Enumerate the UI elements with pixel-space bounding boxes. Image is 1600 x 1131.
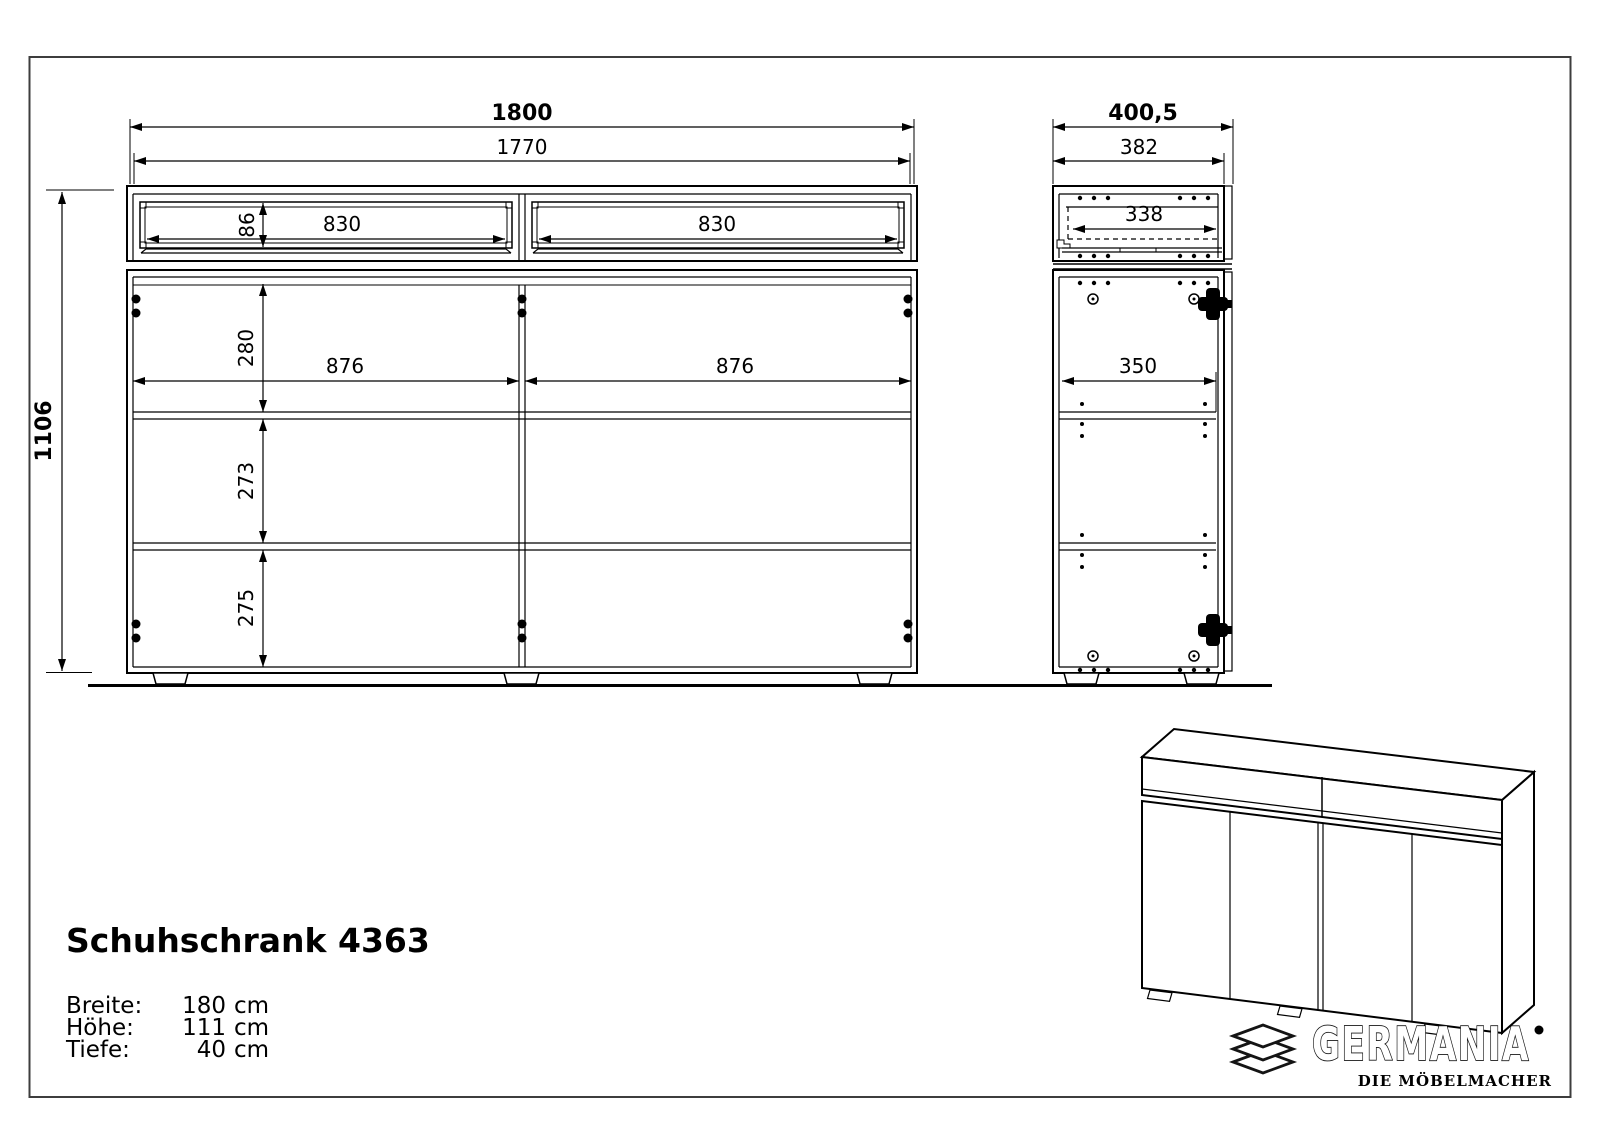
dim-width-inner: 1770 <box>497 135 548 159</box>
side-feet <box>1064 673 1219 684</box>
dim-depth-total: 400,5 <box>1108 101 1178 126</box>
side-view <box>1053 186 1232 684</box>
dim-depth-body: 382 <box>1120 135 1158 159</box>
dim-height-total: 1106 <box>32 400 57 461</box>
dim-bottom-compartment-height: 275 <box>234 589 258 627</box>
product-title: Schuhschrank 4363 <box>66 921 430 960</box>
germania-logo: GERMANIA DIE MÖBELMACHER <box>1233 1017 1552 1090</box>
layers-icon <box>1233 1025 1293 1073</box>
dim-width-total: 1800 <box>491 101 552 126</box>
product-specs: Schuhschrank 4363 Breite: 180 cm Höhe: 1… <box>65 921 430 1063</box>
registered-mark-dot <box>1535 1026 1544 1035</box>
brand-tagline: DIE MÖBELMACHER <box>1358 1071 1552 1090</box>
technical-drawing: 1800 1770 86 830 830 280 273 275 876 876… <box>0 0 1600 1131</box>
dim-top-compartment-height: 280 <box>234 329 258 367</box>
dim-drawer-width-left: 830 <box>323 212 361 236</box>
dim-drawer-depth: 338 <box>1125 202 1163 226</box>
dim-door-width-right: 876 <box>716 354 754 378</box>
dim-drawer-front-height: 86 <box>235 212 259 237</box>
dim-drawer-width-right: 830 <box>698 212 736 236</box>
front-feet <box>153 673 892 684</box>
spec-label-tiefe: Tiefe: <box>65 1037 130 1063</box>
dim-shelf-depth: 350 <box>1119 354 1157 378</box>
spec-unit-tiefe: cm <box>234 1037 269 1063</box>
spec-value-tiefe: 40 <box>197 1037 226 1063</box>
perspective-body-face <box>1142 801 1502 1033</box>
brand-name: GERMANIA <box>1312 1017 1530 1071</box>
dim-door-width-left: 876 <box>326 354 364 378</box>
dim-middle-compartment-height: 273 <box>234 462 258 500</box>
drawing-sheet: 1800 1770 86 830 830 280 273 275 876 876… <box>0 0 1600 1131</box>
perspective-view <box>1142 729 1534 1035</box>
